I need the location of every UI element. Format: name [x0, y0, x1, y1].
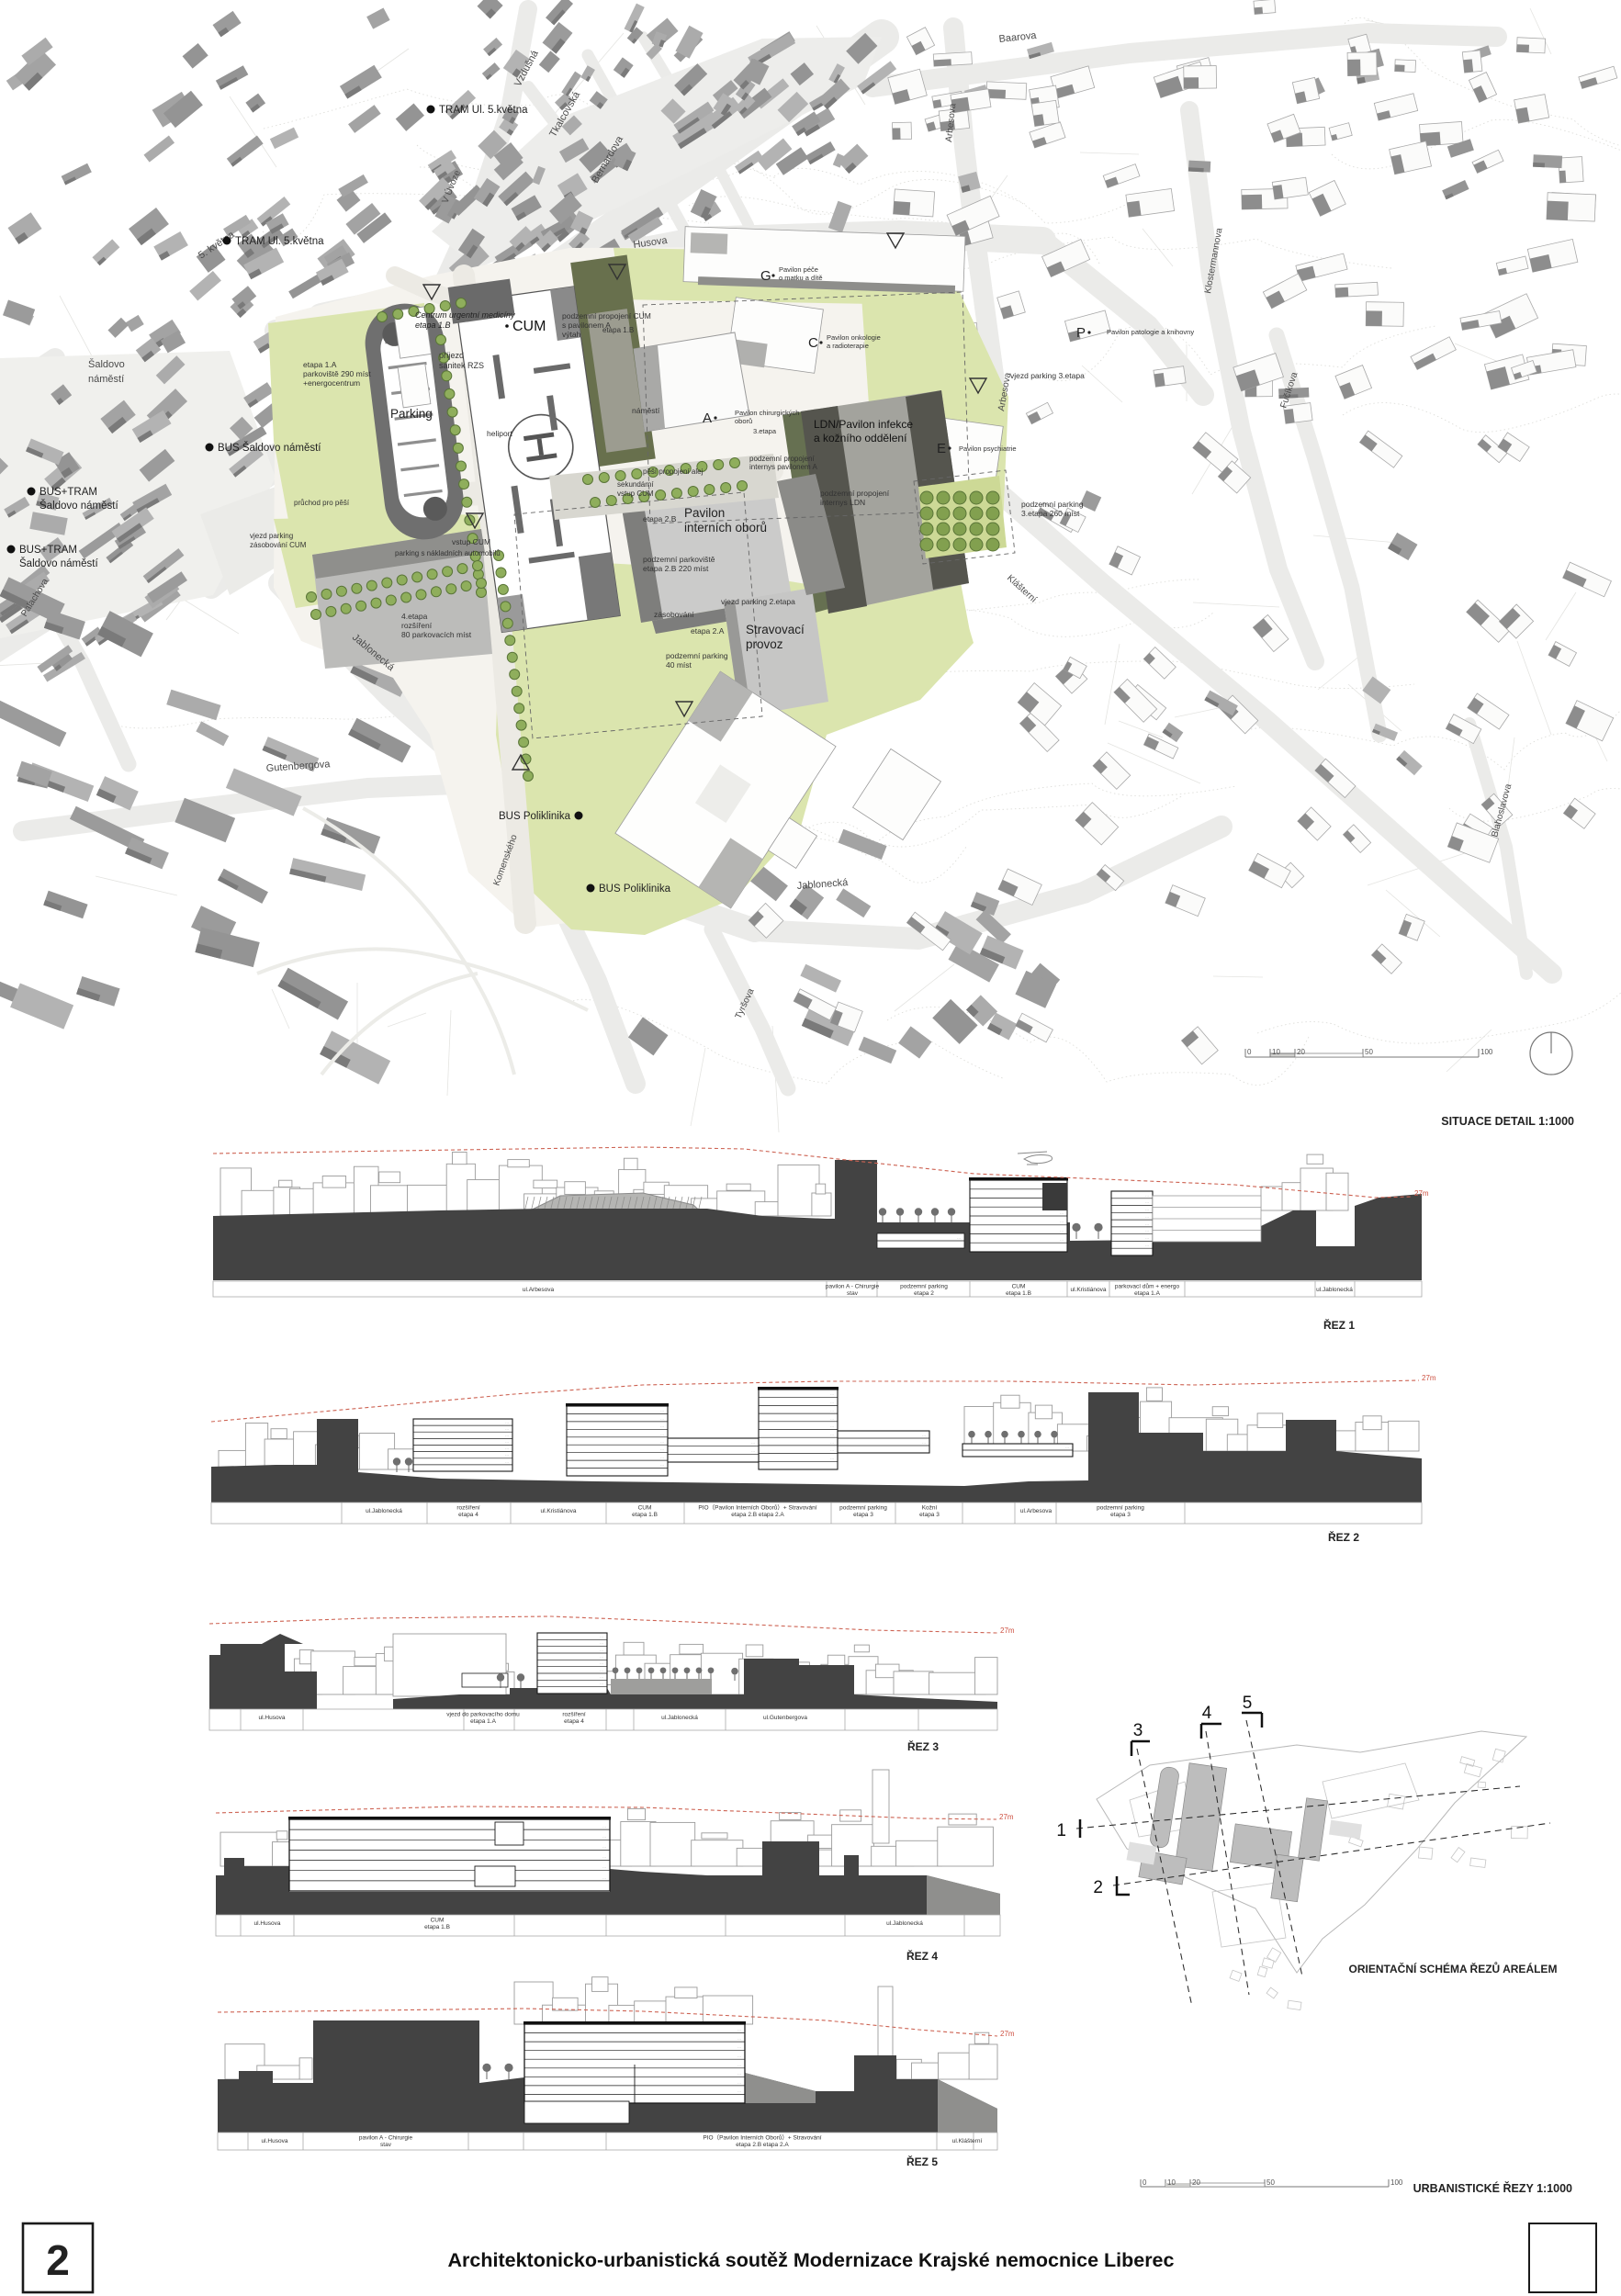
- svg-text:···: ···: [737, 2080, 741, 2085]
- svg-text:A: A: [703, 411, 712, 426]
- svg-text:···: ···: [830, 1440, 834, 1445]
- svg-text:···: ···: [1060, 1238, 1064, 1243]
- svg-text:27m: 27m: [1000, 2030, 1015, 2038]
- svg-text:···: ···: [830, 1448, 834, 1453]
- svg-text:100: 100: [1480, 1048, 1493, 1056]
- svg-text:E: E: [937, 441, 946, 456]
- svg-text:BUS+TRAM: BUS+TRAM: [39, 487, 97, 498]
- svg-text:···: ···: [602, 1855, 606, 1860]
- svg-text:PIO（Pavilon Interních Oborů）+: PIO（Pavilon Interních Oborů）+ Stravování: [703, 2134, 821, 2142]
- svg-text:ul.Gutenbergova: ul.Gutenbergova: [763, 1715, 807, 1721]
- svg-text:···: ···: [830, 1416, 834, 1421]
- svg-text:heliport: heliport: [487, 429, 513, 438]
- svg-text:vjezd parking 2.etapa: vjezd parking 2.etapa: [721, 597, 795, 606]
- svg-text:80 parkovacích míst: 80 parkovacích míst: [401, 630, 472, 639]
- svg-text:sanitek RZS: sanitek RZS: [439, 361, 484, 370]
- svg-text:ORIENTAČNÍ SCHÉMA ŘEZŮ AREÁLEM: ORIENTAČNÍ SCHÉMA ŘEZŮ AREÁLEM: [1349, 1961, 1558, 1975]
- svg-text:stav: stav: [847, 1290, 859, 1297]
- svg-text:SITUACE DETAIL 1:1000: SITUACE DETAIL 1:1000: [1441, 1115, 1574, 1128]
- svg-text:rozšíření: rozšíření: [562, 1712, 585, 1718]
- svg-text:···: ···: [1145, 1200, 1149, 1205]
- svg-text:10: 10: [1272, 1048, 1280, 1056]
- svg-text:···: ···: [505, 1434, 509, 1438]
- svg-text:···: ···: [830, 1409, 834, 1413]
- svg-text:ŘEZ 4: ŘEZ 4: [906, 1949, 938, 1963]
- svg-text:···: ···: [660, 1416, 664, 1421]
- svg-text:BUS Poliklinika: BUS Poliklinika: [599, 884, 671, 895]
- svg-text:···: ···: [505, 1446, 509, 1451]
- svg-text:ul.Klášterní: ul.Klášterní: [952, 2138, 983, 2144]
- svg-text:···: ···: [830, 1392, 834, 1397]
- svg-text:BUS+TRAM: BUS+TRAM: [19, 545, 77, 556]
- svg-text:···: ···: [505, 1427, 509, 1432]
- svg-text:Parking: Parking: [390, 407, 433, 421]
- svg-text:a radioterapie: a radioterapie: [827, 342, 869, 350]
- svg-text:parkoviště 290 míst: parkoviště 290 míst: [303, 369, 371, 378]
- svg-text:Pavilon chirurgických: Pavilon chirurgických: [735, 409, 799, 417]
- svg-text:···: ···: [1060, 1211, 1064, 1216]
- svg-text:vstup CUM: vstup CUM: [452, 537, 490, 546]
- svg-text:podzemní propojení: podzemní propojení: [749, 455, 815, 463]
- svg-text:ul.Jablonecká: ul.Jablonecká: [366, 1508, 402, 1514]
- svg-text:etapa 1.B: etapa 1.B: [424, 1924, 450, 1930]
- svg-text:C: C: [808, 335, 818, 351]
- svg-text:···: ···: [600, 1661, 603, 1666]
- svg-text:náměstí: náměstí: [88, 374, 124, 385]
- svg-text:4: 4: [1202, 1704, 1212, 1723]
- svg-text:zásobování: zásobování: [654, 610, 694, 619]
- svg-text:pavilon A - Chirurgie: pavilon A - Chirurgie: [826, 1284, 880, 1290]
- svg-text:LDN/Pavilon infekce: LDN/Pavilon infekce: [814, 418, 913, 431]
- svg-text:etapa 1.B: etapa 1.B: [415, 321, 451, 330]
- svg-text:etapa 4: etapa 4: [458, 1512, 478, 1518]
- svg-text:zásobování CUM: zásobování CUM: [250, 541, 307, 549]
- svg-text:Pavilon: Pavilon: [684, 506, 725, 520]
- svg-text:···: ···: [505, 1421, 509, 1425]
- svg-text:o matku a dítě: o matku a dítě: [779, 274, 823, 282]
- svg-text:ŘEZ 5: ŘEZ 5: [906, 2155, 938, 2168]
- svg-text:ŘEZ 1: ŘEZ 1: [1323, 1318, 1355, 1332]
- svg-text:příjezd: příjezd: [439, 351, 464, 360]
- svg-text:Architektonicko-urbanistická s: Architektonicko-urbanistická soutěž Mode…: [448, 2249, 1175, 2271]
- svg-text:···: ···: [737, 2063, 741, 2067]
- svg-text:···: ···: [751, 1449, 755, 1454]
- svg-text:···: ···: [1065, 1446, 1069, 1450]
- svg-text:CUM: CUM: [512, 319, 546, 334]
- svg-text:etapa 1.A: etapa 1.A: [1134, 1290, 1160, 1297]
- svg-text:vjezd do parkovacího domu: vjezd do parkovacího domu: [446, 1712, 520, 1718]
- svg-text:···: ···: [660, 1456, 664, 1460]
- svg-text:···: ···: [830, 1457, 834, 1461]
- svg-text:PIO（Pavilon Interních Oborů）+: PIO（Pavilon Interních Oborů）+ Stravování: [698, 1504, 816, 1512]
- svg-text:ul.Kristiánova: ul.Kristiánova: [1070, 1287, 1106, 1293]
- svg-text:oborů: oborů: [735, 417, 752, 425]
- svg-text:podzemní parking: podzemní parking: [1021, 500, 1084, 509]
- svg-text:···: ···: [660, 1432, 664, 1436]
- svg-text:parking s nákladních automobil: parking s nákladních automobilů: [395, 549, 501, 557]
- svg-text:rozšíření: rozšíření: [456, 1505, 479, 1512]
- svg-text:···: ···: [830, 1433, 834, 1437]
- svg-text:etapa 1.A: etapa 1.A: [303, 360, 337, 369]
- svg-text:···: ···: [737, 2028, 741, 2032]
- svg-text:podzemní parkoviště: podzemní parkoviště: [643, 555, 715, 564]
- svg-text:27m: 27m: [999, 1813, 1014, 1821]
- svg-text:parkovací dům + energo: parkovací dům + energo: [1115, 1283, 1180, 1290]
- svg-text:···: ···: [737, 2037, 741, 2042]
- svg-text:Pavilon psychiatrie: Pavilon psychiatrie: [959, 445, 1017, 453]
- svg-text:2: 2: [1093, 1878, 1103, 1897]
- svg-text:Pavilon patologie a knihovny: Pavilon patologie a knihovny: [1107, 328, 1194, 336]
- svg-text:vjezd parking 3.etapa: vjezd parking 3.etapa: [1010, 371, 1085, 380]
- svg-text:···: ···: [1145, 1221, 1149, 1226]
- svg-text:···: ···: [660, 1440, 664, 1445]
- svg-text:···: ···: [600, 1649, 603, 1653]
- svg-text:etapa 2.B etapa 2: etapa 2.B etapa 2.A: [731, 1512, 784, 1518]
- svg-text:···: ···: [600, 1669, 603, 1673]
- svg-text:···: ···: [602, 1875, 606, 1880]
- svg-text:Šaldovo: Šaldovo: [88, 358, 125, 370]
- svg-text:podzemní parking: podzemní parking: [839, 1505, 887, 1512]
- svg-text:ul.Husova: ul.Husova: [254, 1920, 281, 1927]
- svg-text:50: 50: [1266, 2178, 1275, 2187]
- svg-text:etapa 1.A: etapa 1.A: [470, 1718, 496, 1725]
- svg-text:···: ···: [600, 1682, 603, 1686]
- svg-text:rozšíření: rozšíření: [401, 621, 433, 630]
- svg-text:···: ···: [505, 1440, 509, 1445]
- svg-text:ŘEZ 2: ŘEZ 2: [1328, 1530, 1359, 1544]
- svg-text:···: ···: [660, 1447, 664, 1452]
- svg-text:4.etapa: 4.etapa: [401, 612, 428, 621]
- svg-text:···: ···: [830, 1401, 834, 1405]
- svg-text:TRAM Ul. 5.května: TRAM Ul. 5.května: [235, 236, 324, 247]
- svg-text:etapa 2.B 220 míst: etapa 2.B 220 míst: [643, 564, 709, 573]
- svg-text:ul.Husova: ul.Husova: [262, 2138, 288, 2144]
- svg-text:podzemní propojení: podzemní propojení: [820, 489, 890, 498]
- svg-text:···: ···: [737, 2054, 741, 2059]
- svg-text:···: ···: [1145, 1193, 1149, 1198]
- svg-text:3: 3: [1133, 1721, 1143, 1740]
- svg-text:P: P: [1076, 325, 1086, 341]
- svg-text:BUS Poliklinika: BUS Poliklinika: [499, 811, 571, 822]
- svg-text:···: ···: [505, 1459, 509, 1464]
- svg-text:ul.Arbesova: ul.Arbesova: [1020, 1508, 1053, 1514]
- svg-text:ul.Husova: ul.Husova: [259, 1715, 286, 1721]
- svg-text:CUM: CUM: [431, 1918, 445, 1924]
- svg-text:vstup CUM: vstup CUM: [617, 490, 654, 498]
- svg-text:1: 1: [1056, 1821, 1066, 1840]
- svg-text:···: ···: [505, 1453, 509, 1458]
- svg-text:G: G: [760, 268, 771, 284]
- svg-text:···: ···: [602, 1835, 606, 1840]
- svg-text:···: ···: [602, 1865, 606, 1870]
- svg-text:etapa 1.B: etapa 1.B: [602, 326, 634, 334]
- svg-text:etapa 2.B etapa 2: etapa 2.B etapa 2.A: [736, 2142, 789, 2148]
- svg-text:pěší propojení alej: pěší propojení alej: [643, 467, 704, 476]
- svg-text:TRAM Ul. 5.května: TRAM Ul. 5.května: [439, 105, 528, 116]
- svg-text:3.etapa: 3.etapa: [753, 427, 777, 435]
- svg-text:etapa 3: etapa 3: [919, 1512, 940, 1518]
- svg-text:etapa 3: etapa 3: [853, 1512, 873, 1518]
- svg-text:3.etapa 260 míst: 3.etapa 260 míst: [1021, 509, 1080, 518]
- svg-text:···: ···: [737, 2089, 741, 2094]
- svg-text:provoz: provoz: [746, 637, 783, 651]
- svg-text:0: 0: [1143, 2178, 1147, 2187]
- svg-text:podzemní propojení CUM: podzemní propojení CUM: [562, 311, 651, 321]
- svg-text:Centrum urgentní medicíny: Centrum urgentní medicíny: [415, 310, 515, 320]
- svg-text:Šaldovo náměstí: Šaldovo náměstí: [19, 557, 98, 569]
- svg-text:···: ···: [957, 1236, 961, 1241]
- svg-text:27m: 27m: [1414, 1189, 1429, 1198]
- svg-text:···: ···: [600, 1655, 603, 1660]
- svg-text:···: ···: [737, 2045, 741, 2050]
- svg-text:podzemní parking: podzemní parking: [900, 1284, 948, 1290]
- svg-text:ul.Arbesova: ul.Arbesova: [523, 1287, 555, 1293]
- svg-text:CUM: CUM: [1012, 1284, 1026, 1290]
- svg-text:ul.Jablonecká: ul.Jablonecká: [661, 1715, 698, 1721]
- svg-text:40 míst: 40 míst: [666, 660, 692, 670]
- svg-text:···: ···: [737, 2072, 741, 2077]
- svg-text:27m: 27m: [1000, 1626, 1015, 1635]
- svg-text:etapa 4: etapa 4: [564, 1718, 584, 1725]
- svg-text:···: ···: [660, 1424, 664, 1429]
- svg-text:Pavilon onkologie: Pavilon onkologie: [827, 333, 881, 342]
- svg-text:internys LDN: internys LDN: [820, 498, 865, 507]
- svg-text:27m: 27m: [1422, 1374, 1436, 1382]
- svg-text:pavilon A - Chirurgie: pavilon A - Chirurgie: [359, 2135, 413, 2142]
- svg-text:výtah: výtah: [562, 330, 581, 339]
- svg-text:···: ···: [602, 1845, 606, 1850]
- svg-text:···: ···: [1060, 1220, 1064, 1224]
- svg-text:podzemní parking: podzemní parking: [1097, 1505, 1144, 1512]
- svg-text:···: ···: [600, 1635, 603, 1639]
- svg-text:···: ···: [922, 1434, 926, 1438]
- svg-text:10: 10: [1167, 2178, 1176, 2187]
- svg-text:···: ···: [1145, 1229, 1149, 1233]
- svg-text:100: 100: [1390, 2178, 1403, 2187]
- svg-text:sekundární: sekundární: [617, 480, 654, 489]
- svg-text:etapa 3: etapa 3: [1110, 1512, 1131, 1518]
- svg-text:průchod pro pěší: průchod pro pěší: [294, 499, 350, 507]
- svg-text:Šaldovo náměstí: Šaldovo náměstí: [39, 500, 118, 512]
- svg-text:2: 2: [46, 2236, 70, 2284]
- svg-text:etapa 1.B: etapa 1.B: [1006, 1290, 1031, 1297]
- svg-text:Stravovací: Stravovací: [746, 623, 805, 636]
- svg-text:···: ···: [1145, 1236, 1149, 1241]
- svg-text:20: 20: [1297, 1048, 1305, 1056]
- svg-text:···: ···: [922, 1441, 926, 1446]
- svg-text:···: ···: [1145, 1244, 1149, 1248]
- svg-text:+energocentrum: +energocentrum: [303, 378, 360, 388]
- svg-text:podzemní parking: podzemní parking: [666, 651, 728, 660]
- svg-text:···: ···: [751, 1441, 755, 1446]
- svg-text:etapa 2: etapa 2: [914, 1290, 934, 1297]
- svg-text:stav: stav: [380, 2142, 392, 2148]
- svg-text:náměstí: náměstí: [632, 406, 660, 415]
- svg-text:internys pavilonem A: internys pavilonem A: [749, 463, 817, 471]
- svg-text:BUS Šaldovo náměstí: BUS Šaldovo náměstí: [218, 442, 321, 454]
- svg-text:50: 50: [1365, 1048, 1373, 1056]
- svg-text:Kožní: Kožní: [922, 1505, 938, 1512]
- svg-text:URBANISTICKÉ ŘEZY 1:1000: URBANISTICKÉ ŘEZY 1:1000: [1413, 2181, 1572, 2195]
- svg-text:···: ···: [1145, 1208, 1149, 1212]
- svg-text:0: 0: [1247, 1048, 1252, 1056]
- svg-text:etapa 2.B: etapa 2.B: [643, 514, 677, 523]
- svg-text:···: ···: [1060, 1229, 1064, 1233]
- svg-text:20: 20: [1192, 2178, 1200, 2187]
- svg-text:···: ···: [600, 1641, 603, 1646]
- svg-text:vjezd parking: vjezd parking: [250, 532, 293, 540]
- svg-text:ŘEZ 3: ŘEZ 3: [907, 1739, 939, 1753]
- svg-text:···: ···: [660, 1463, 664, 1468]
- svg-text:a kožního oddělení: a kožního oddělení: [814, 432, 907, 445]
- svg-text:5: 5: [1243, 1694, 1253, 1713]
- svg-text:···: ···: [1145, 1215, 1149, 1220]
- svg-text:interních oborů: interních oborů: [684, 521, 767, 535]
- svg-text:···: ···: [660, 1409, 664, 1413]
- svg-text:···: ···: [600, 1675, 603, 1680]
- svg-text:Pavilon péče: Pavilon péče: [779, 265, 818, 274]
- svg-text:···: ···: [830, 1424, 834, 1429]
- svg-text:ul.Kristiánova: ul.Kristiánova: [540, 1508, 576, 1514]
- svg-text:etapa 1.B: etapa 1.B: [632, 1512, 658, 1518]
- svg-text:ul.Jablonecká: ul.Jablonecká: [886, 1920, 923, 1927]
- svg-text:CUM: CUM: [638, 1505, 652, 1512]
- svg-text:etapa 2.A: etapa 2.A: [691, 626, 725, 636]
- svg-text:ul.Jablonecká: ul.Jablonecká: [1316, 1287, 1353, 1293]
- svg-text:···: ···: [602, 1825, 606, 1829]
